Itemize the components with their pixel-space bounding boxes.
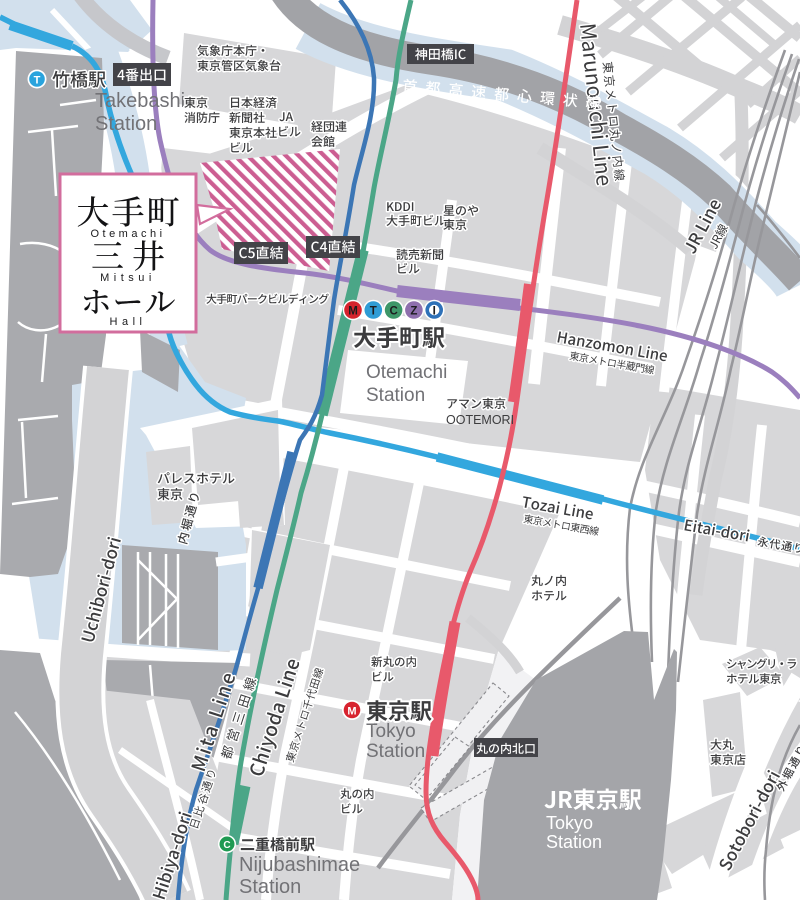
svg-text:Hall: Hall xyxy=(110,316,147,328)
svg-text:Z: Z xyxy=(410,306,417,318)
svg-text:T: T xyxy=(34,75,41,87)
svg-text:Otemachi: Otemachi xyxy=(366,362,447,383)
svg-text:C: C xyxy=(389,306,397,318)
svg-text:Nijubashimae: Nijubashimae xyxy=(239,854,360,876)
svg-text:T: T xyxy=(370,306,377,318)
svg-text:OOTEMORI: OOTEMORI xyxy=(446,413,514,427)
svg-text:Station: Station xyxy=(239,876,301,898)
svg-text:M: M xyxy=(347,706,356,718)
svg-text:Station: Station xyxy=(366,385,425,406)
svg-text:M: M xyxy=(348,306,358,318)
svg-text:Tokyo: Tokyo xyxy=(546,813,593,833)
svg-text:Otemachi: Otemachi xyxy=(90,228,165,240)
svg-text:I: I xyxy=(433,306,436,318)
svg-text:Station: Station xyxy=(366,741,425,762)
svg-text:Station: Station xyxy=(546,832,602,852)
svg-text:C: C xyxy=(223,840,230,851)
svg-text:Mitsui: Mitsui xyxy=(100,272,156,284)
svg-text:Tokyo: Tokyo xyxy=(366,721,416,742)
svg-text:Takebashi: Takebashi xyxy=(95,90,185,112)
svg-text:Station: Station xyxy=(95,113,157,135)
